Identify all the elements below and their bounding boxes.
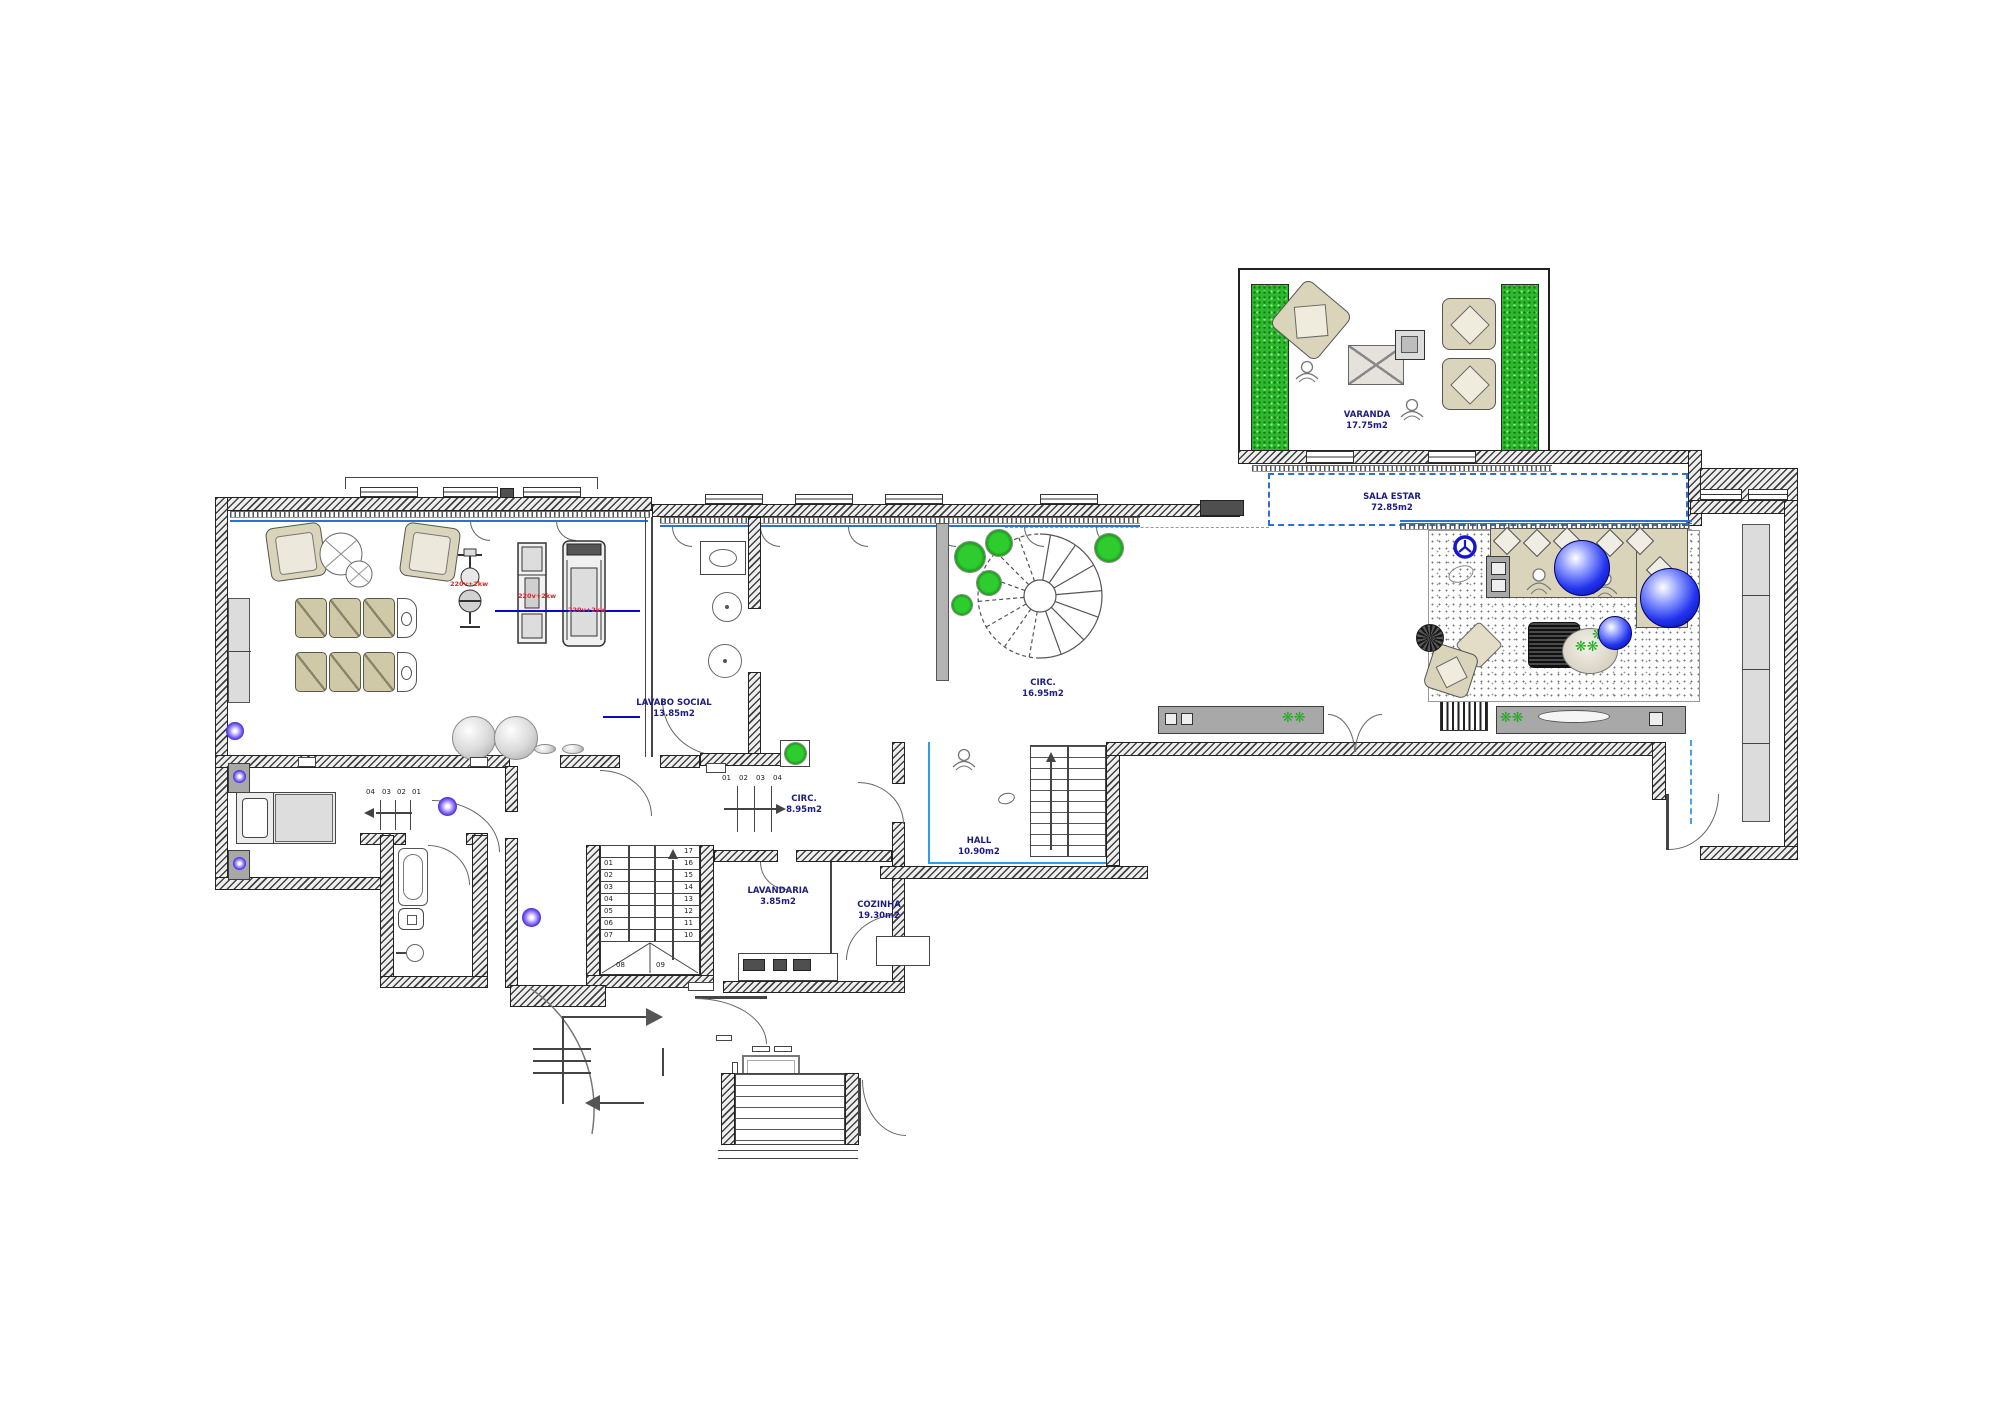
kitchen-counter <box>738 953 838 981</box>
room-label-sala-estar: SALA ESTAR72.85m2 <box>1342 492 1442 514</box>
wall-segment <box>723 981 905 993</box>
direction-line <box>1050 762 1052 850</box>
dumbbell <box>534 744 556 754</box>
massage-table <box>295 652 417 692</box>
wall-segment <box>215 497 228 890</box>
step-line <box>533 1072 591 1074</box>
partition-line <box>651 517 653 757</box>
power-label: 220v+2kw <box>568 606 606 614</box>
planter-right <box>1501 284 1539 452</box>
plant <box>784 742 807 765</box>
wall-segment <box>748 672 761 757</box>
step-number: 01 <box>604 860 613 867</box>
step-number: 08 <box>616 962 625 969</box>
massage-table <box>295 598 417 638</box>
double-door-arc <box>1328 714 1355 752</box>
wall-segment <box>660 755 700 768</box>
window <box>795 494 853 504</box>
double-door-arc <box>1355 714 1382 752</box>
blue-sphere <box>1640 568 1700 628</box>
window <box>1700 489 1742 500</box>
window <box>1040 494 1098 504</box>
step-line <box>410 800 411 830</box>
step-line <box>533 1060 591 1062</box>
plant-icon: ❋❋ <box>1282 711 1305 725</box>
lamp <box>233 857 246 870</box>
window <box>1428 451 1476 463</box>
step-number: 13 <box>684 896 693 903</box>
wall-segment <box>700 845 714 988</box>
step-line <box>380 800 381 830</box>
toilet <box>398 908 424 930</box>
vent-box <box>298 757 316 767</box>
step-line <box>718 1150 858 1151</box>
step-number: 04 <box>773 775 782 782</box>
step-number: 04 <box>366 789 375 796</box>
direction-arrow <box>668 849 678 859</box>
direction-arrow <box>364 808 374 818</box>
wall-segment <box>1700 846 1798 860</box>
window-bracket <box>345 477 346 489</box>
bathtub <box>398 848 428 906</box>
door-arc <box>1669 794 1719 850</box>
partition-line <box>830 862 832 960</box>
wall-segment <box>721 1073 735 1145</box>
exercise-ball <box>494 716 538 760</box>
wall-segment <box>1106 742 1120 866</box>
wall-segment <box>796 850 892 862</box>
wall-segment <box>560 755 620 768</box>
stair-rail <box>628 845 630 941</box>
plant <box>985 529 1013 557</box>
wall-segment <box>472 835 488 988</box>
step-number: 16 <box>684 860 693 867</box>
step-number: 11 <box>684 920 693 927</box>
staircase-lower <box>735 1073 845 1145</box>
casement-arc <box>760 527 780 547</box>
treadmill <box>560 538 608 650</box>
power-label: 220v+2kw <box>450 580 488 588</box>
pedestal-sink <box>708 644 742 678</box>
ceiling-light <box>438 797 457 816</box>
partition-line <box>645 517 646 757</box>
wall-segment <box>892 742 905 784</box>
round-tables <box>315 528 375 590</box>
wall-segment <box>380 976 488 988</box>
plant <box>954 541 986 573</box>
label-box <box>688 982 714 991</box>
direction-arrow <box>585 1095 600 1111</box>
blue-sphere <box>1598 616 1632 650</box>
bench <box>716 1035 732 1041</box>
window-line <box>1400 520 1692 522</box>
lamp <box>233 770 246 783</box>
vent-box <box>706 763 726 773</box>
top-rail <box>752 1046 770 1052</box>
armchair <box>1442 358 1496 410</box>
wall-segment <box>1690 500 1798 514</box>
step-number: 14 <box>684 884 693 891</box>
step-number: 01 <box>412 789 421 796</box>
insulation-band <box>1252 465 1552 472</box>
floor-plan: VARANDA17.75m2 SALA ESTAR72.85m2 <box>0 0 2000 1414</box>
bed <box>236 792 336 844</box>
door-arc <box>862 1080 906 1136</box>
wall-segment <box>880 866 1148 879</box>
step-number: 03 <box>604 884 613 891</box>
direction-line <box>562 1016 646 1018</box>
window <box>443 487 498 497</box>
tap <box>396 952 406 954</box>
ceiling-fan-icon <box>1452 534 1478 560</box>
step-number: 03 <box>756 775 765 782</box>
room-label-hall: HALL10.90m2 <box>950 836 1008 858</box>
ceiling-light <box>522 908 541 927</box>
basket <box>1416 624 1444 652</box>
marker-line <box>662 1048 664 1076</box>
step-number: 03 <box>382 789 391 796</box>
room-label-lavabo: LAVABO SOCIAL13.85m2 <box>628 698 720 720</box>
step-number: 02 <box>604 872 613 879</box>
step-number: 02 <box>397 789 406 796</box>
sink <box>406 944 424 962</box>
step-number: 06 <box>604 920 613 927</box>
plant-icon: ❋❋ <box>1500 711 1523 725</box>
stair-rail <box>1067 745 1069 857</box>
step-number: 01 <box>722 775 731 782</box>
person-figure <box>1293 358 1321 384</box>
dumbbell <box>562 744 584 754</box>
washbasin-counter <box>700 541 746 575</box>
ceiling-light <box>226 722 244 740</box>
wall-segment <box>505 766 518 812</box>
wall-segment <box>380 835 394 988</box>
window <box>885 494 943 504</box>
step-number: 17 <box>684 848 693 855</box>
step-line <box>533 1048 591 1050</box>
stair-winder-lines <box>600 941 700 975</box>
step-line <box>718 1158 858 1159</box>
step-number: 15 <box>684 872 693 879</box>
step-number: 07 <box>604 932 613 939</box>
top-rail <box>774 1046 792 1052</box>
power-label: 220v+2kw <box>518 592 556 600</box>
exercise-bike <box>452 545 488 633</box>
wall-segment <box>714 850 778 862</box>
direction-line <box>376 812 412 814</box>
side-table <box>1395 330 1425 360</box>
column <box>1200 500 1244 516</box>
pillar <box>936 523 949 681</box>
room-label-circ-spiral: CIRC.16.95m2 <box>1008 678 1078 700</box>
direction-arrow <box>1046 752 1056 762</box>
insulation-band <box>230 511 650 518</box>
door-arc <box>858 782 904 824</box>
window <box>1306 451 1354 463</box>
wall-segment <box>1784 500 1798 860</box>
plant <box>976 570 1002 596</box>
wall-segment <box>586 845 600 988</box>
wall-segment <box>748 517 761 609</box>
casement-arc <box>672 527 692 547</box>
step-number: 12 <box>684 908 693 915</box>
casement-arc <box>470 521 490 541</box>
window-bracket <box>597 477 598 489</box>
person-figure <box>950 746 978 772</box>
wall-segment <box>1652 742 1666 800</box>
platter <box>1538 710 1610 723</box>
room-label-circ-hall: CIRC.8.95m2 <box>778 794 830 816</box>
sofa-side-table <box>1486 556 1510 598</box>
wall-cabinet <box>228 598 250 703</box>
step-number: 02 <box>739 775 748 782</box>
person-figure <box>1524 566 1554 596</box>
room-label-lavandaria: LAVANDARIA3.85m2 <box>742 886 814 908</box>
blue-sphere <box>1554 540 1610 596</box>
wall-segment <box>1106 742 1658 756</box>
stair-rail <box>654 845 656 941</box>
window <box>360 487 418 497</box>
pedestal-sink <box>712 592 742 622</box>
door-leaf <box>858 1078 861 1136</box>
step-number: 09 <box>656 962 665 969</box>
armchair <box>1442 298 1496 350</box>
wall-segment <box>505 838 518 988</box>
wall-segment <box>845 1073 859 1145</box>
step-number: 05 <box>604 908 613 915</box>
threshold-dashed <box>1690 740 1692 824</box>
room-label-varanda: VARANDA17.75m2 <box>1317 410 1417 432</box>
step-number: 04 <box>604 896 613 903</box>
plant <box>1094 533 1124 563</box>
tall-cabinet <box>1742 524 1770 822</box>
direction-line <box>724 808 776 810</box>
step-line <box>395 800 396 830</box>
direction-line <box>600 1102 644 1104</box>
window <box>705 494 763 504</box>
step-number: 10 <box>684 932 693 939</box>
sala-estar-zone <box>1268 473 1688 526</box>
window <box>1748 489 1788 500</box>
window-bracket <box>345 477 598 478</box>
casement-arc <box>848 527 868 547</box>
room-label-cozinha: COZINHA19.30m2 <box>846 900 912 922</box>
window <box>523 487 581 497</box>
plant <box>951 594 973 616</box>
direction-arrow <box>646 1008 663 1026</box>
direction-line <box>672 860 674 960</box>
wall-segment <box>215 497 652 511</box>
door-arc <box>600 770 652 816</box>
vent-box <box>470 757 488 767</box>
window-line <box>230 520 648 522</box>
bookshelf <box>1440 701 1488 731</box>
wall-segment <box>652 504 1240 517</box>
exercise-ball <box>452 716 496 760</box>
